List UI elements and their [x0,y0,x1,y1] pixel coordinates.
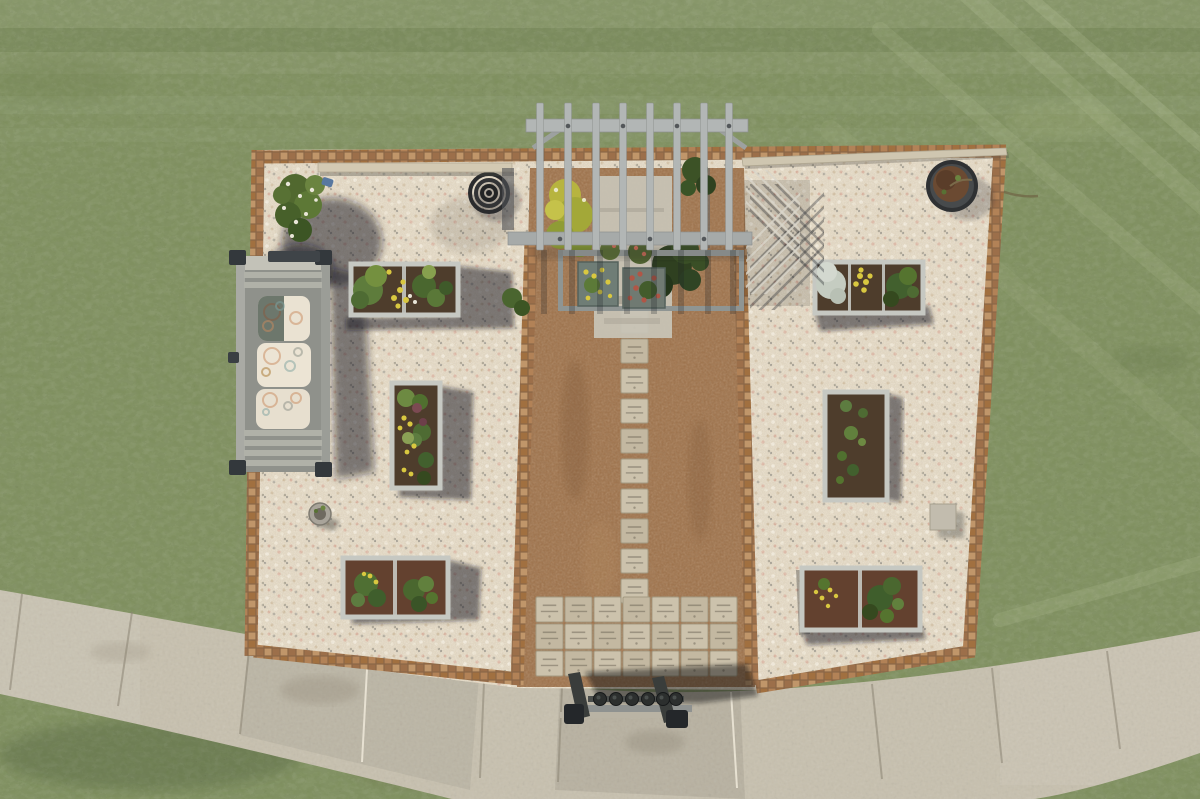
memorial-paver-grid [536,597,737,676]
raised-bed-bottom-right [796,568,926,645]
raised-bed-mid-left [392,383,473,500]
raised-bed-top-left [346,264,514,330]
bench-cushions [256,296,311,429]
wood-beam-left [318,163,514,176]
raised-bed-top-right [815,262,934,331]
aerial-garden-photo: Aerial drone view of a community memoria… [0,0,1200,799]
aerial-photo-stage: Aerial drone view of a community memoria… [0,0,1200,799]
raised-bed-mid-right [825,392,903,502]
raised-bed-bottom-left [343,558,481,624]
